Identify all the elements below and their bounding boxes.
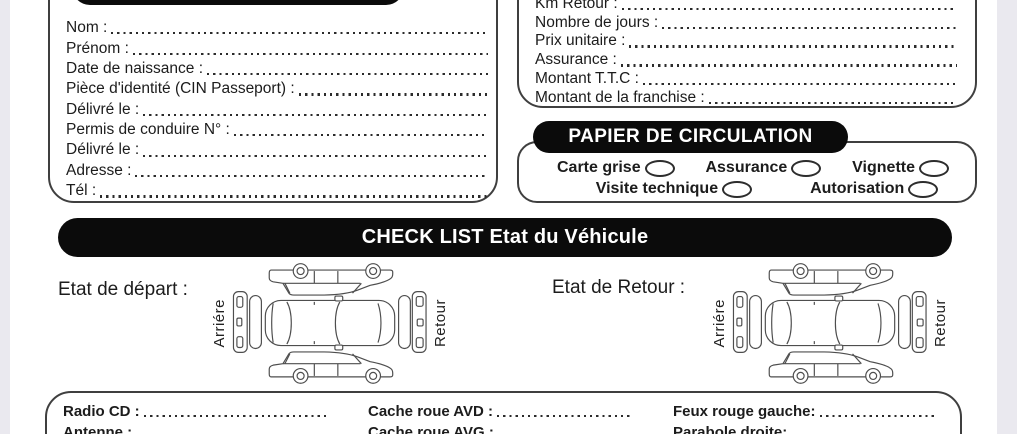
field-row: Cache roue AVG : xyxy=(368,421,635,434)
client-box-banner xyxy=(72,0,404,5)
field-row: Radio CD : xyxy=(63,400,330,421)
diagram-retour-label: Retour xyxy=(433,299,448,347)
fill-in-blank[interactable] xyxy=(621,64,957,66)
field-row: Montant T.T.C : xyxy=(535,70,959,89)
checkbox-visite-technique[interactable] xyxy=(722,181,752,198)
circulation-item-carte-grise: Carte grise xyxy=(557,159,675,177)
circulation-row-1: Carte grise Assurance Vignette xyxy=(557,159,949,177)
fill-in-blank[interactable] xyxy=(111,32,488,34)
fill-in-blank[interactable] xyxy=(709,102,957,104)
checkbox-assurance[interactable] xyxy=(791,160,821,177)
field-label: Nom : xyxy=(66,19,107,37)
field-row: Tél : xyxy=(66,180,490,200)
field-label: Assurance : xyxy=(535,51,617,69)
field-label: Feux rouge gauche: xyxy=(673,403,816,421)
field-label: Tél : xyxy=(66,182,96,200)
circulation-item-visite-technique: Visite technique xyxy=(596,180,752,198)
field-label: Cache roue AVD : xyxy=(368,403,493,421)
field-label: Montant T.T.C : xyxy=(535,70,639,88)
fill-in-blank[interactable] xyxy=(207,73,488,75)
item-label: Visite technique xyxy=(596,180,718,198)
page-margin-right xyxy=(997,0,1017,434)
field-label: Prix unitaire : xyxy=(535,32,625,50)
diagram-rear-label: Arriére xyxy=(712,299,727,348)
field-label: Radio CD : xyxy=(63,403,140,421)
item-label: Assurance xyxy=(705,159,787,177)
car-condition-diagram-depart[interactable]: Arriére Retour xyxy=(212,258,464,388)
field-row: Pièce d'identité (CIN Passeport) : xyxy=(66,78,490,98)
fill-in-blank[interactable] xyxy=(133,53,488,55)
equipment-checklist-box: Radio CD : Antenne : Cache roue AVD : Ca… xyxy=(45,391,962,434)
field-label: Montant de la franchise : xyxy=(535,89,705,107)
fill-in-blank[interactable] xyxy=(135,175,488,177)
page-margin-left xyxy=(0,0,10,434)
car-diagram-svg[interactable] xyxy=(232,260,428,386)
field-label: Délivré le : xyxy=(66,101,139,119)
equipment-grid: Radio CD : Antenne : Cache roue AVD : Ca… xyxy=(47,393,960,434)
etat-depart-label: Etat de départ : xyxy=(58,279,188,301)
circulation-item-autorisation: Autorisation xyxy=(810,180,938,198)
client-fields: Nom : Prénom : Date de naissance : Pièce… xyxy=(66,17,490,201)
item-label: Carte grise xyxy=(557,159,641,177)
field-row: Date de naissance : xyxy=(66,58,490,78)
rental-contract-form: Nom : Prénom : Date de naissance : Pièce… xyxy=(0,0,1017,434)
field-label: Délivré le : xyxy=(66,141,139,159)
field-row: Km Retour : xyxy=(535,0,959,13)
field-label: Permis de conduire N° : xyxy=(66,121,230,139)
field-label: Km Retour : xyxy=(535,0,618,13)
field-row: Nom : xyxy=(66,17,490,37)
equipment-col-3: Feux rouge gauche: Parabole droite: xyxy=(673,400,940,434)
field-row: Feux rouge gauche: xyxy=(673,400,940,421)
diagram-retour-label: Retour xyxy=(933,299,948,347)
circulation-item-assurance: Assurance xyxy=(705,159,821,177)
field-label: Pièce d'identité (CIN Passeport) : xyxy=(66,80,295,98)
field-label: Prénom : xyxy=(66,40,129,58)
item-label: Autorisation xyxy=(810,180,904,198)
equipment-col-1: Radio CD : Antenne : xyxy=(63,400,330,434)
circulation-item-vignette: Vignette xyxy=(852,159,949,177)
circulation-title-banner: PAPIER DE CIRCULATION xyxy=(533,121,848,153)
checkbox-autorisation[interactable] xyxy=(908,181,938,198)
field-label: Nombre de jours : xyxy=(535,14,658,32)
fill-in-blank[interactable] xyxy=(143,155,488,157)
checklist-title-banner: CHECK LIST Etat du Véhicule xyxy=(58,218,952,257)
field-label: Cache roue AVG : xyxy=(368,424,494,434)
circulation-row-2: Visite technique Autorisation xyxy=(519,180,975,198)
checkbox-carte-grise[interactable] xyxy=(645,160,675,177)
field-row: Assurance : xyxy=(535,51,959,70)
field-row: Antenne : xyxy=(63,421,330,434)
item-label: Vignette xyxy=(852,159,915,177)
field-row: Prix unitaire : xyxy=(535,32,959,51)
field-label: Parabole droite: xyxy=(673,424,787,434)
fill-in-blank[interactable] xyxy=(643,83,957,85)
field-row: Adresse : xyxy=(66,160,490,180)
fill-in-blank[interactable] xyxy=(100,195,488,197)
etat-retour-label: Etat de Retour : xyxy=(552,277,685,299)
field-label: Adresse : xyxy=(66,162,131,180)
fill-in-blank[interactable] xyxy=(662,27,957,29)
field-row: Délivré le : xyxy=(66,139,490,159)
field-label: Date de naissance : xyxy=(66,60,203,78)
fill-in-blank[interactable] xyxy=(144,415,328,417)
equipment-col-2: Cache roue AVD : Cache roue AVG : xyxy=(368,400,635,434)
field-row: Cache roue AVD : xyxy=(368,400,635,421)
car-diagram-svg[interactable] xyxy=(732,260,928,386)
fill-in-blank[interactable] xyxy=(143,114,488,116)
field-row: Permis de conduire N° : xyxy=(66,119,490,139)
field-row: Montant de la franchise : xyxy=(535,88,959,107)
field-label: Antenne : xyxy=(63,424,132,434)
fill-in-blank[interactable] xyxy=(497,415,633,417)
checkbox-vignette[interactable] xyxy=(919,160,949,177)
fill-in-blank[interactable] xyxy=(629,45,957,47)
field-row: Parabole droite: xyxy=(673,421,940,434)
fill-in-blank[interactable] xyxy=(622,8,957,10)
fill-in-blank[interactable] xyxy=(299,93,488,95)
field-row: Nombre de jours : xyxy=(535,13,959,32)
diagram-rear-label: Arriére xyxy=(212,299,227,348)
car-condition-diagram-retour[interactable]: Arriére Retour xyxy=(712,258,964,388)
fill-in-blank[interactable] xyxy=(820,415,938,417)
rental-fields: Km Retour : Nombre de jours : Prix unita… xyxy=(535,0,959,107)
field-row: Prénom : xyxy=(66,37,490,57)
field-row: Délivré le : xyxy=(66,99,490,119)
fill-in-blank[interactable] xyxy=(234,134,488,136)
